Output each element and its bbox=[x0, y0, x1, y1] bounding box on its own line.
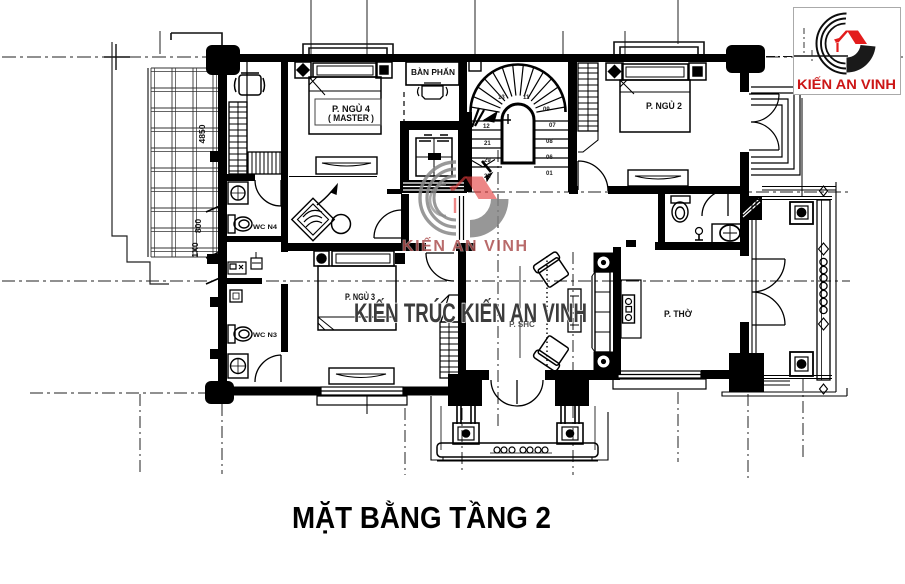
svg-text:01: 01 bbox=[546, 171, 553, 177]
svg-text:29: 29 bbox=[484, 158, 491, 164]
svg-text:800: 800 bbox=[193, 219, 203, 233]
svg-text:KIẾN TRÚC KIẾN AN VINH: KIẾN TRÚC KIẾN AN VINH bbox=[354, 297, 587, 328]
svg-text:P. NGỦ 3: P. NGỦ 3 bbox=[345, 291, 375, 302]
svg-text:KIẾN AN VINH: KIẾN AN VINH bbox=[797, 76, 896, 92]
svg-text:BÀN PHẤN: BÀN PHẤN bbox=[411, 67, 455, 77]
svg-text:06: 06 bbox=[546, 155, 553, 161]
svg-text:KIẾN AN VINH: KIẾN AN VINH bbox=[402, 236, 527, 255]
svg-text:13: 13 bbox=[498, 95, 505, 101]
svg-text:P. SHC: P. SHC bbox=[509, 320, 535, 329]
svg-text:WC N4: WC N4 bbox=[253, 224, 277, 231]
svg-text:WC N3: WC N3 bbox=[253, 332, 277, 339]
svg-text:MẶT BẰNG TẦNG 2: MẶT BẰNG TẦNG 2 bbox=[292, 500, 551, 535]
svg-text:P. NGỦ 2: P. NGỦ 2 bbox=[646, 100, 682, 111]
svg-text:1X0: 1X0 bbox=[190, 242, 200, 257]
svg-text:09: 09 bbox=[543, 107, 550, 113]
svg-text:P. THỜ: P. THỜ bbox=[664, 308, 692, 319]
svg-text:4850: 4850 bbox=[197, 124, 207, 143]
svg-text:21: 21 bbox=[484, 141, 491, 147]
svg-text:07: 07 bbox=[549, 123, 556, 129]
svg-text:12: 12 bbox=[483, 124, 490, 130]
svg-text:08: 08 bbox=[546, 139, 553, 145]
svg-text:( MASTER ): ( MASTER ) bbox=[328, 113, 374, 123]
svg-text:11: 11 bbox=[523, 95, 530, 101]
svg-text:25: 25 bbox=[484, 174, 491, 180]
